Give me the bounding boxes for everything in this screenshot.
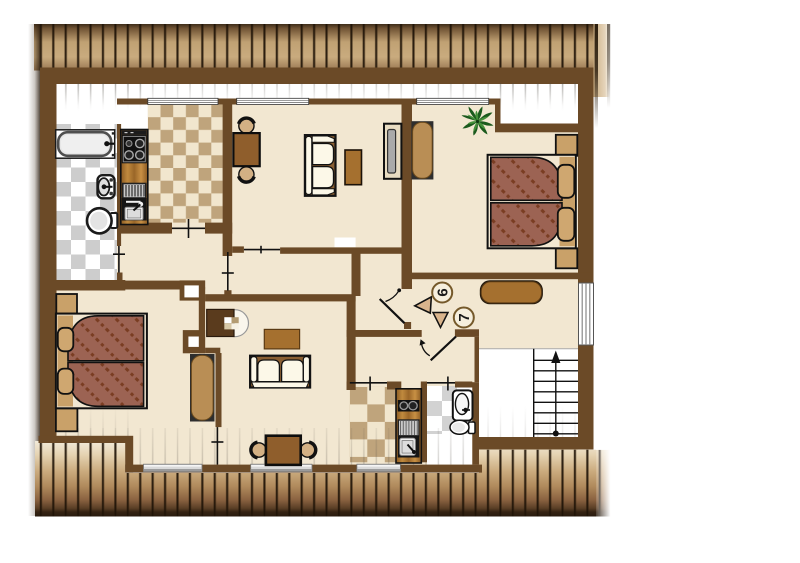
svg-text:6: 6 <box>434 288 451 296</box>
svg-text:7: 7 <box>456 313 473 321</box>
